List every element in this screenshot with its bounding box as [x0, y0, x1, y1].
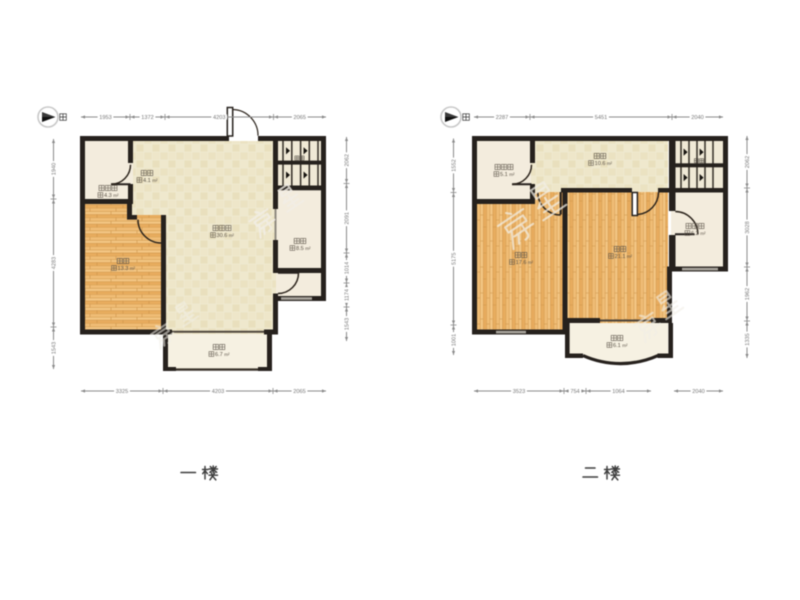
svg-text:3523: 3523 [513, 389, 525, 395]
svg-text:m²: m² [700, 231, 706, 236]
svg-text:21.1: 21.1 [615, 254, 626, 260]
svg-text:1174: 1174 [345, 289, 351, 301]
svg-text:m²: m² [113, 193, 119, 198]
svg-text:10.6: 10.6 [595, 161, 606, 167]
svg-text:m²: m² [305, 246, 311, 251]
svg-text:2065: 2065 [294, 115, 306, 121]
svg-text:4.3: 4.3 [104, 193, 112, 199]
svg-text:4283: 4283 [52, 257, 58, 269]
svg-text:m²: m² [622, 343, 628, 348]
svg-text:754: 754 [570, 389, 579, 395]
svg-text:2091: 2091 [345, 212, 351, 224]
svg-text:m²: m² [528, 260, 534, 265]
svg-text:6.7: 6.7 [215, 352, 223, 358]
svg-text:m²: m² [224, 352, 230, 357]
svg-text:1014: 1014 [345, 262, 351, 274]
svg-text:m²: m² [627, 254, 633, 259]
svg-text:5175: 5175 [452, 253, 458, 265]
svg-text:1335: 1335 [745, 333, 751, 345]
svg-text:m²: m² [130, 266, 136, 271]
svg-text:1940: 1940 [52, 163, 58, 175]
svg-text:2040: 2040 [692, 389, 704, 395]
svg-text:3028: 3028 [745, 221, 751, 233]
svg-text:2287: 2287 [496, 115, 508, 121]
svg-text:4203: 4203 [213, 115, 225, 121]
svg-text:5451: 5451 [595, 115, 607, 121]
svg-text:1064: 1064 [612, 389, 624, 395]
svg-text:4.1: 4.1 [143, 178, 151, 184]
svg-text:4203: 4203 [212, 389, 224, 395]
svg-text:1543: 1543 [345, 318, 351, 330]
svg-text:2065: 2065 [293, 389, 305, 395]
svg-text:1552: 1552 [452, 159, 458, 171]
svg-text:m²: m² [152, 178, 158, 183]
svg-text:1953: 1953 [99, 115, 111, 121]
svg-text:2040: 2040 [691, 115, 703, 121]
svg-text:6.2: 6.2 [691, 231, 699, 237]
svg-text:30.6: 30.6 [217, 233, 228, 239]
svg-text:2062: 2062 [345, 154, 351, 166]
svg-text:m²: m² [509, 172, 515, 177]
svg-text:6.1: 6.1 [613, 343, 621, 349]
svg-text:1372: 1372 [141, 115, 153, 121]
svg-text:8.5: 8.5 [296, 246, 304, 252]
svg-text:13.3: 13.3 [118, 266, 129, 272]
svg-text:1001: 1001 [452, 334, 458, 346]
svg-text:17.6: 17.6 [516, 260, 527, 266]
svg-text:5.1: 5.1 [500, 172, 508, 178]
svg-text:3325: 3325 [116, 389, 128, 395]
svg-text:m²: m² [607, 161, 613, 166]
svg-text:m²: m² [229, 233, 235, 238]
svg-text:1543: 1543 [52, 342, 58, 354]
svg-text:2062: 2062 [745, 156, 751, 168]
svg-text:1962: 1962 [745, 288, 751, 300]
